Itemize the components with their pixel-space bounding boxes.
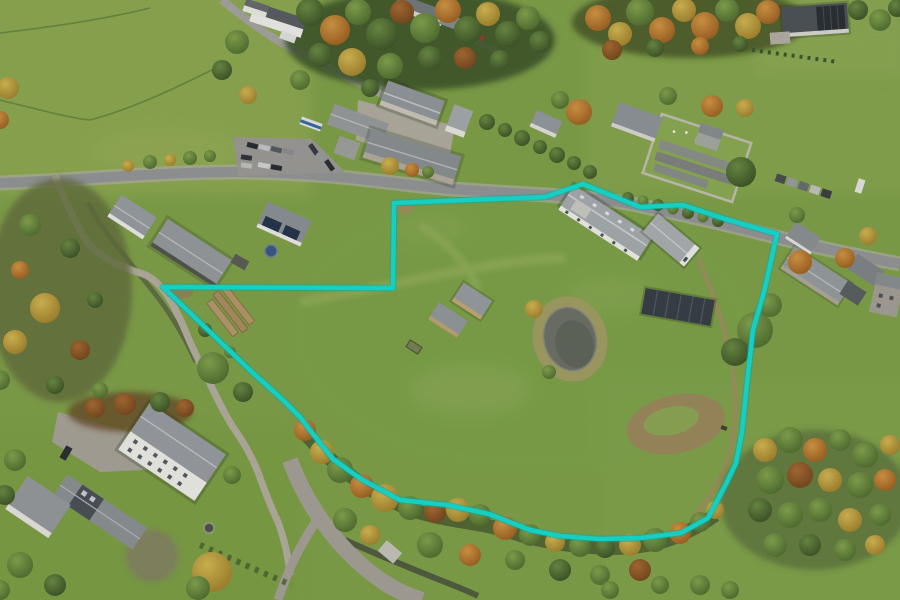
aerial-photo-canvas [0,0,900,600]
aerial-photo-of-property [0,0,900,600]
